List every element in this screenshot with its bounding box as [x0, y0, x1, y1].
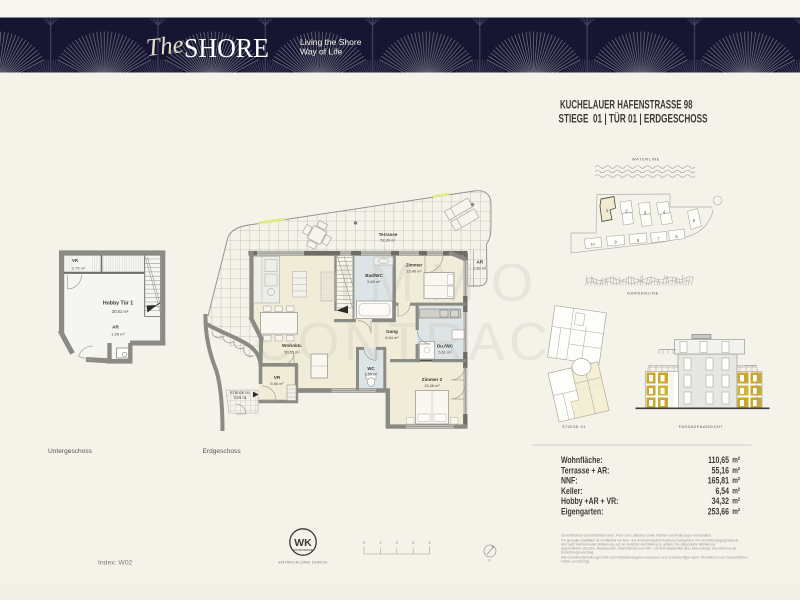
svg-text:Eigengarten:: Eigengarten: — [561, 507, 603, 517]
svg-text:Zimmer: Zimmer — [406, 263, 423, 268]
svg-text:WK: WK — [294, 537, 312, 549]
svg-text:10: 10 — [590, 242, 595, 247]
svg-text:2,75 m²: 2,75 m² — [72, 266, 86, 271]
svg-text:GARDENLINE: GARDENLINE — [627, 292, 659, 296]
svg-text:m²: m² — [732, 485, 740, 495]
svg-text:ENTWICKLUNG DURCH: ENTWICKLUNG DURCH — [278, 561, 327, 565]
svg-text:Hobby +AR + VR:: Hobby +AR + VR: — [561, 496, 618, 506]
svg-text:15,06 m²: 15,06 m² — [424, 383, 440, 388]
svg-text:Wohnfläche:: Wohnfläche: — [561, 455, 603, 465]
svg-text:FASSADENANSICHT: FASSADENANSICHT — [679, 425, 724, 429]
svg-text:Index: W02: Index: W02 — [98, 560, 133, 567]
svg-text:15,40 m²: 15,40 m² — [406, 269, 422, 274]
svg-text:Bad/WC: Bad/WC — [365, 273, 383, 278]
svg-text:m²: m² — [732, 506, 740, 516]
svg-text:1: 1 — [606, 208, 609, 213]
svg-text:NNF:: NNF: — [561, 476, 578, 486]
svg-text:Living the Shore: Living the Shore — [300, 37, 362, 47]
svg-text:Gang: Gang — [386, 329, 398, 334]
svg-text:1,59 m²: 1,59 m² — [365, 373, 379, 377]
svg-text:Terrasse: Terrasse — [379, 232, 398, 237]
svg-text:VR: VR — [274, 375, 281, 380]
svg-text:Keller:: Keller: — [561, 486, 583, 496]
svg-text:52,39 m²: 52,39 m² — [380, 238, 396, 243]
svg-text:VR: VR — [72, 258, 79, 263]
svg-text:110,65: 110,65 — [708, 455, 729, 465]
svg-text:m²: m² — [732, 496, 740, 506]
svg-text:34,32: 34,32 — [712, 496, 730, 506]
svg-text:30,81 m²: 30,81 m² — [112, 309, 129, 314]
svg-text:Zimmer 2: Zimmer 2 — [422, 377, 443, 382]
svg-text:6,54: 6,54 — [715, 486, 729, 496]
svg-text:165,81: 165,81 — [708, 476, 730, 486]
svg-text:KUCHELAUER HAFENSTRASSE 98: KUCHELAUER HAFENSTRASSE 98 — [560, 98, 693, 112]
svg-text:253,66: 253,66 — [708, 507, 730, 517]
svg-text:55,16: 55,16 — [712, 465, 730, 475]
svg-text:SHORE: SHORE — [184, 32, 269, 63]
svg-text:Einrichtungsvorschlag.: Einrichtungsvorschlag. — [561, 550, 594, 554]
svg-text:m²: m² — [732, 455, 740, 465]
svg-text:Erdgeschoss: Erdgeschoss — [203, 448, 242, 455]
svg-text:m²: m² — [732, 475, 740, 485]
svg-text:AR: AR — [112, 325, 119, 330]
svg-text:Hobby Tür 1: Hobby Tür 1 — [103, 301, 133, 307]
svg-text:STIEGE 01 | TÜR 01 | ERDGESCH: STIEGE 01 | TÜR 01 | ERDGESCHOSS — [559, 111, 708, 126]
svg-text:WC: WC — [367, 366, 375, 371]
svg-text:1,95 m²: 1,95 m² — [111, 332, 125, 337]
svg-text:Wohnkü.: Wohnkü. — [282, 343, 302, 349]
svg-text:Du./WC: Du./WC — [437, 344, 454, 349]
svg-text:The: The — [145, 31, 185, 62]
svg-text:Way of Life: Way of Life — [300, 47, 342, 57]
svg-text:STIEGE 01: STIEGE 01 — [562, 425, 586, 429]
svg-text:Fläche und Bezüge.: Fläche und Bezüge. — [561, 559, 590, 563]
svg-text:5,66 m²: 5,66 m² — [270, 381, 284, 386]
svg-text:m²: m² — [732, 465, 740, 475]
svg-text:WATERLINE: WATERLINE — [632, 158, 660, 162]
svg-text:N: N — [488, 559, 491, 563]
svg-text:5,61 m²: 5,61 m² — [438, 350, 452, 355]
svg-text:Untergeschoss: Untergeschoss — [48, 448, 93, 455]
svg-text:6,64 m²: 6,64 m² — [385, 335, 399, 340]
svg-text:Unverbindliche Grundrissinform: Unverbindliche Grundrissinformation, Pla… — [561, 533, 712, 537]
svg-text:50,55 m²: 50,55 m² — [284, 350, 300, 355]
svg-text:TÜR 01: TÜR 01 — [233, 395, 248, 400]
svg-text:WOHNKOMPANIE: WOHNKOMPANIE — [293, 549, 313, 552]
svg-text:5,60 m²: 5,60 m² — [367, 279, 381, 284]
svg-text:Terrasse + AR:: Terrasse + AR: — [561, 465, 609, 475]
